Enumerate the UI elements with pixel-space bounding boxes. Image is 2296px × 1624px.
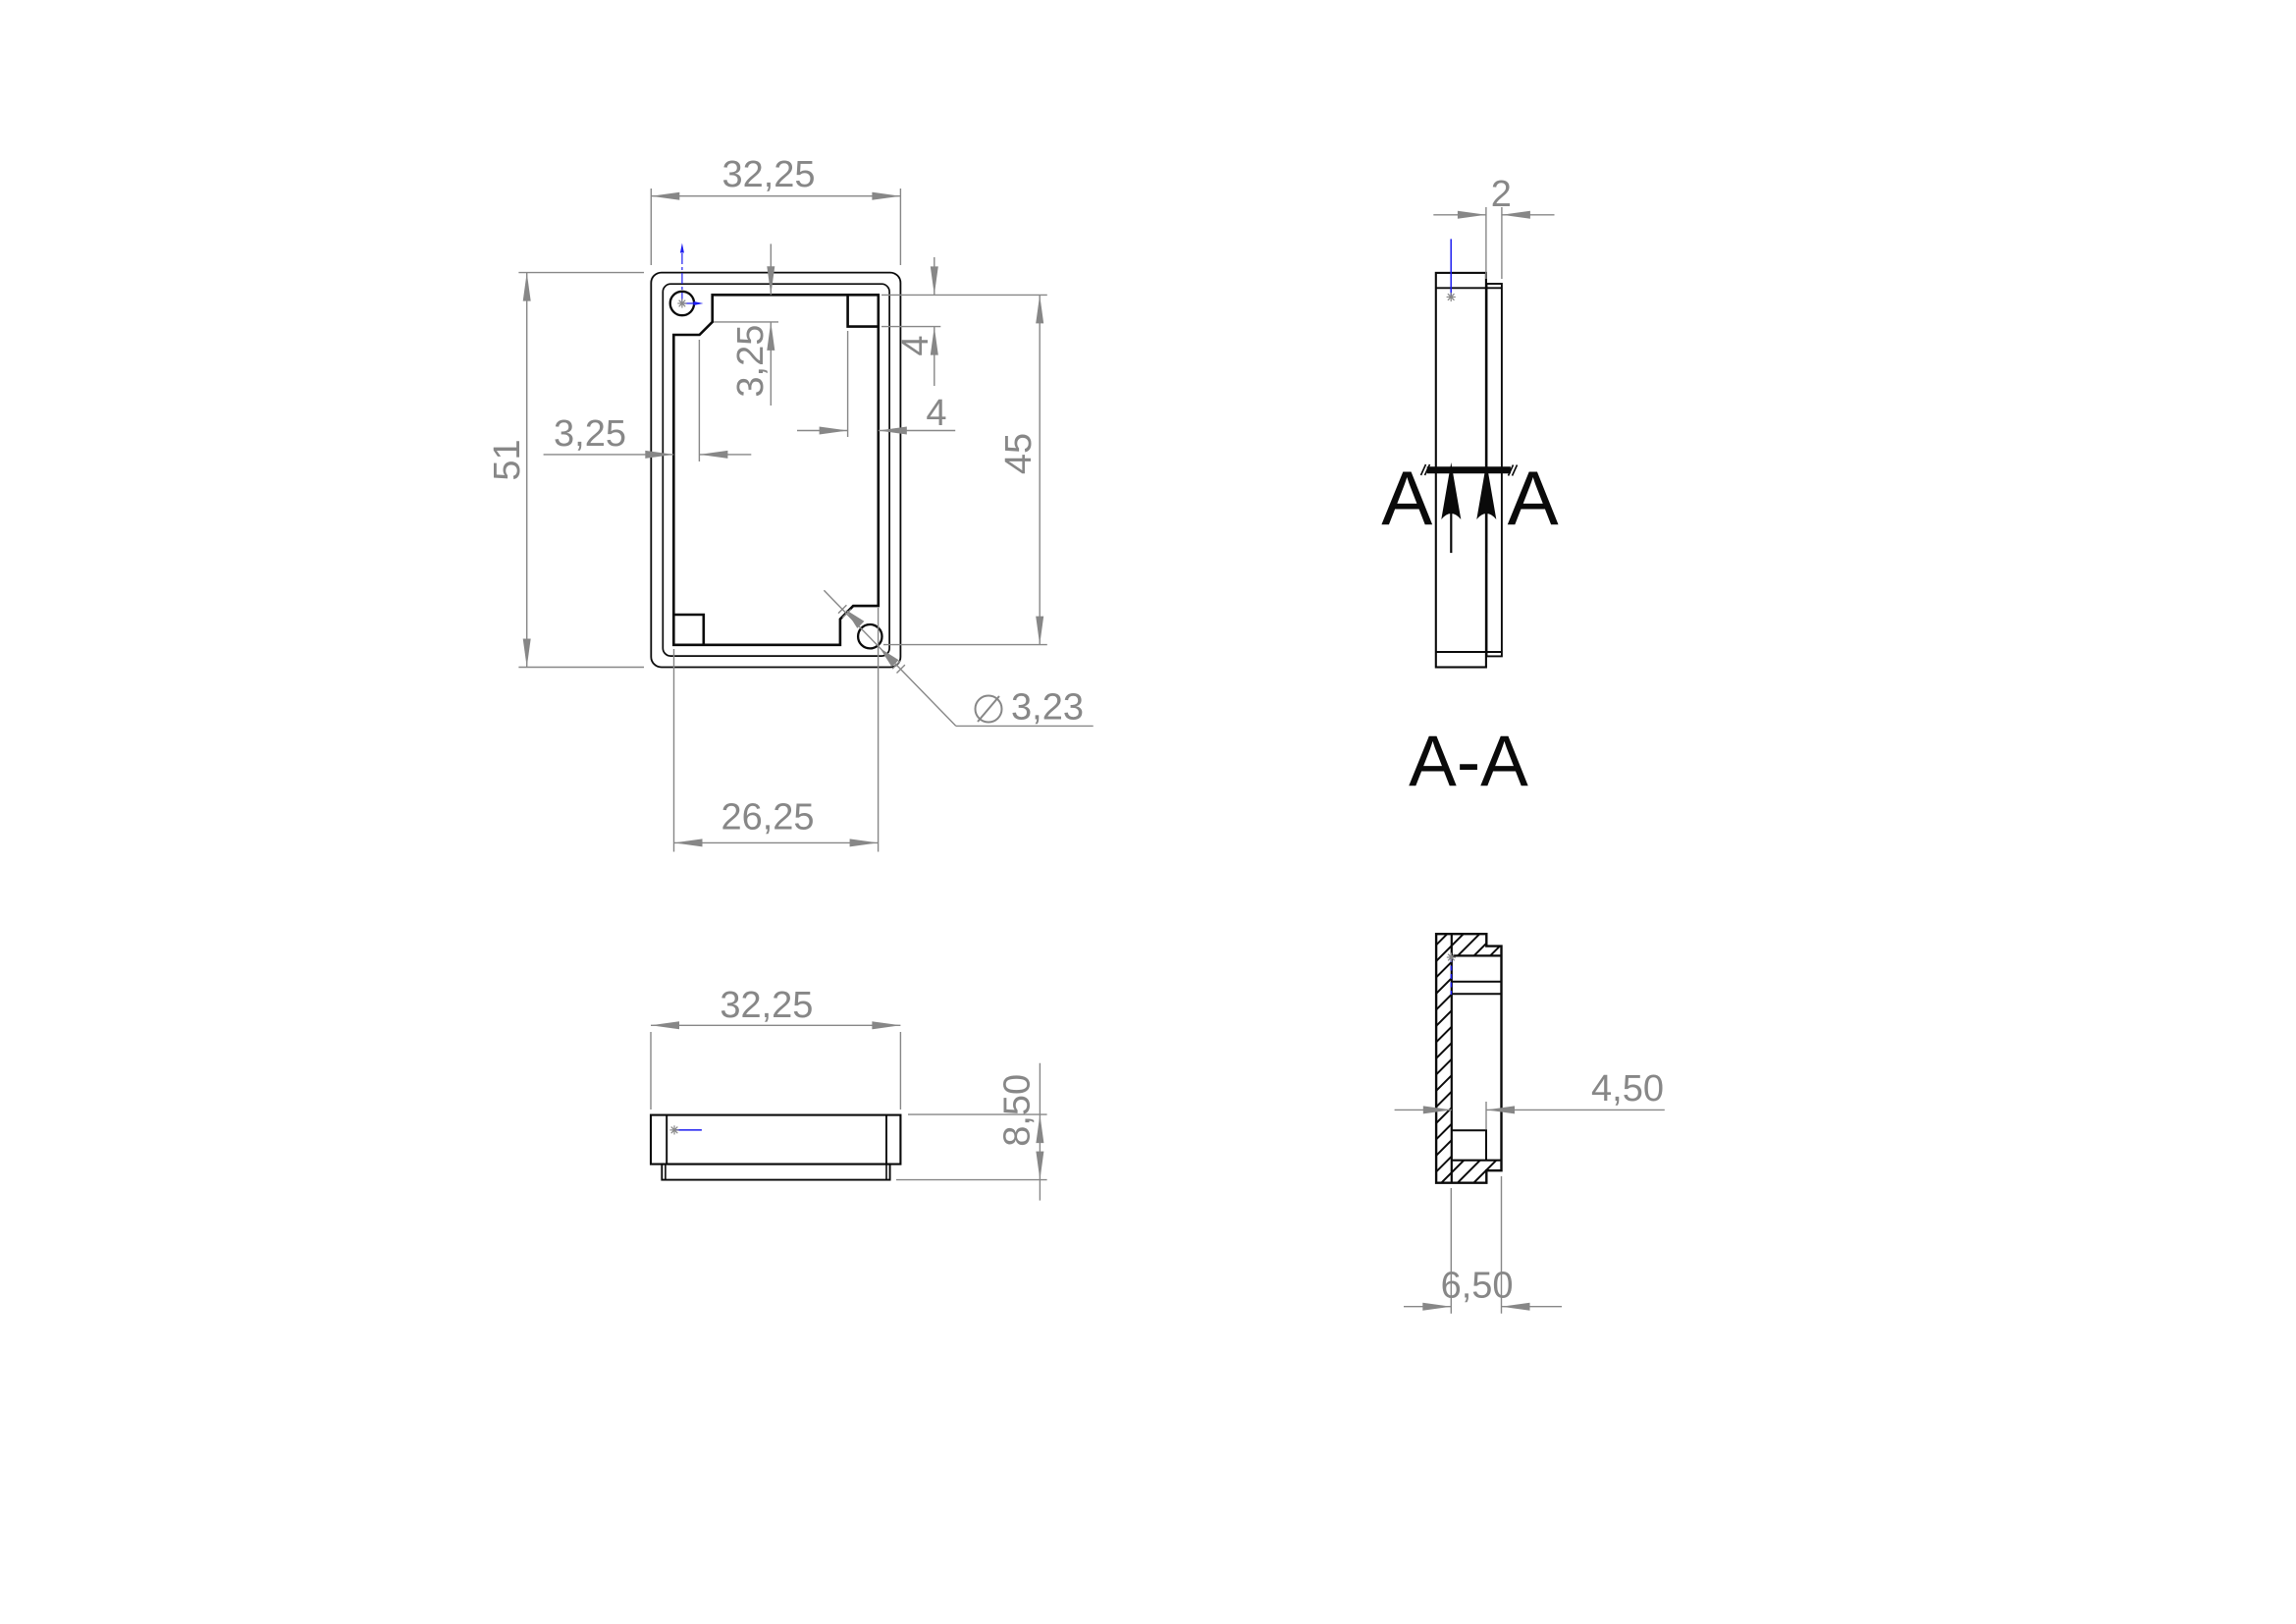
svg-text:32,25: 32,25 — [721, 154, 815, 195]
svg-text:A: A — [1381, 455, 1432, 541]
svg-text:A-A: A-A — [1409, 723, 1528, 802]
svg-text:8,50: 8,50 — [997, 1074, 1039, 1147]
svg-text:32,25: 32,25 — [720, 985, 813, 1026]
svg-text:4: 4 — [895, 335, 936, 355]
svg-text:2: 2 — [1491, 174, 1512, 215]
svg-text:26,25: 26,25 — [721, 797, 814, 839]
svg-text:A: A — [1508, 455, 1559, 541]
svg-text:51: 51 — [487, 439, 528, 480]
svg-text:3,23: 3,23 — [1011, 687, 1084, 729]
svg-text:4,50: 4,50 — [1591, 1068, 1664, 1110]
svg-text:6,50: 6,50 — [1441, 1266, 1514, 1307]
svg-text:4: 4 — [926, 393, 946, 434]
svg-text:45: 45 — [998, 433, 1040, 474]
svg-text:3,25: 3,25 — [554, 413, 626, 455]
svg-text:3,25: 3,25 — [730, 325, 772, 398]
